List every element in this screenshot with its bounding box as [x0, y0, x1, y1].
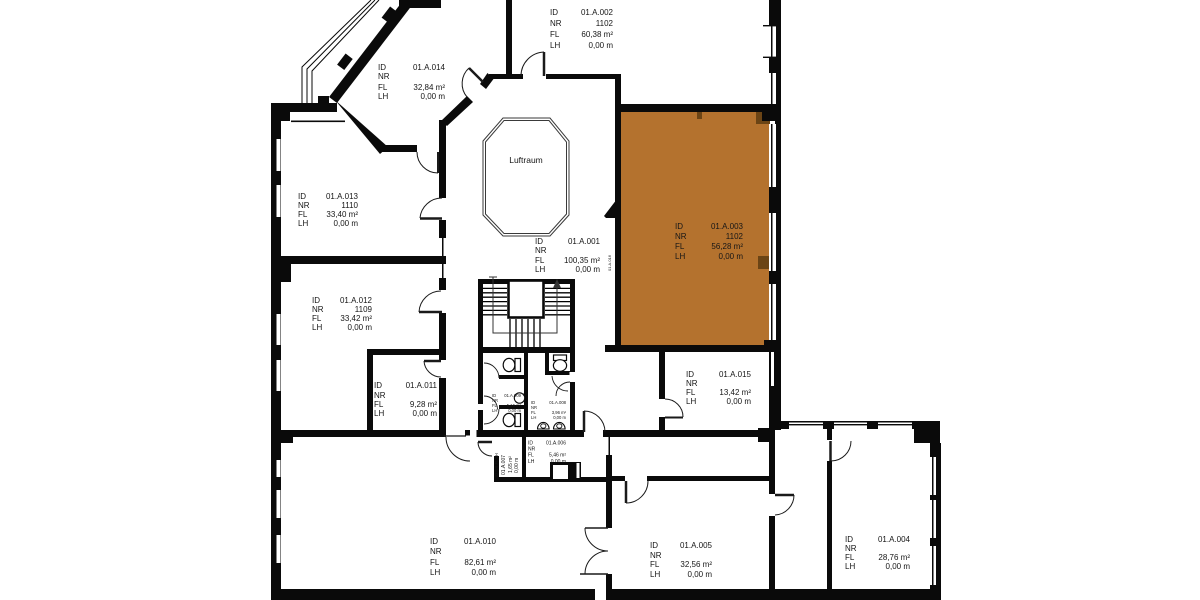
svg-text:LH: LH — [535, 265, 545, 274]
svg-text:0,00 m: 0,00 m — [413, 409, 438, 418]
svg-text:ID: ID — [430, 537, 438, 546]
svg-text:NR: NR — [430, 547, 442, 556]
svg-text:LH: LH — [312, 323, 322, 332]
svg-text:0,00 m: 0,00 m — [719, 252, 744, 261]
svg-text:LH: LH — [492, 408, 497, 413]
svg-text:28,76 m²: 28,76 m² — [878, 553, 910, 562]
svg-text:9,28 m²: 9,28 m² — [410, 400, 437, 409]
svg-text:NR: NR — [535, 246, 547, 255]
svg-text:NR: NR — [298, 201, 310, 210]
svg-text:FL: FL — [650, 560, 660, 569]
svg-text:01.A.010: 01.A.010 — [464, 537, 497, 546]
svg-text:1110: 1110 — [341, 201, 358, 210]
svg-text:32,84 m²: 32,84 m² — [413, 83, 445, 92]
svg-text:NR: NR — [650, 551, 662, 560]
svg-text:32,56 m²: 32,56 m² — [680, 560, 712, 569]
svg-text:NR: NR — [374, 391, 386, 400]
svg-text:NR: NR — [675, 232, 687, 241]
svg-text:LH: LH — [550, 41, 560, 50]
svg-text:01.A.008: 01.A.008 — [549, 400, 566, 405]
svg-text:ID: ID — [650, 541, 658, 550]
svg-text:ID: ID — [550, 8, 558, 17]
svg-text:NR: NR — [686, 379, 698, 388]
svg-text:FL: FL — [686, 388, 696, 397]
svg-text:FL: FL — [845, 553, 855, 562]
svg-text:33,40 m²: 33,40 m² — [326, 210, 358, 219]
svg-text:LH: LH — [675, 252, 685, 261]
svg-text:01.A.012: 01.A.012 — [340, 296, 373, 305]
svg-text:ID: ID — [535, 237, 543, 246]
svg-text:LH: LH — [378, 92, 388, 101]
svg-text:1102: 1102 — [726, 232, 744, 241]
svg-text:0,00 m: 0,00 m — [334, 219, 359, 228]
svg-text:ID: ID — [845, 535, 853, 544]
svg-text:ID: ID — [686, 370, 694, 379]
svg-text:LH: LH — [686, 397, 696, 406]
svg-text:0,00 m: 0,00 m — [553, 415, 566, 420]
svg-text:5,46 m²: 5,46 m² — [549, 453, 566, 459]
svg-text:1102: 1102 — [596, 19, 614, 28]
svg-text:FL: FL — [312, 314, 322, 323]
svg-text:ID: ID — [378, 63, 386, 72]
svg-text:FL: FL — [550, 30, 560, 39]
svg-text:FL: FL — [535, 256, 545, 265]
svg-text:FL: FL — [675, 242, 685, 251]
svg-text:01.A.014: 01.A.014 — [413, 63, 446, 72]
svg-text:01.A.004: 01.A.004 — [878, 535, 911, 544]
svg-text:13,42 m²: 13,42 m² — [719, 388, 751, 397]
svg-text:FL: FL — [528, 453, 534, 459]
svg-text:1109: 1109 — [355, 305, 373, 314]
svg-text:01.A.016: 01.A.016 — [607, 254, 612, 271]
svg-text:01.A.002: 01.A.002 — [581, 8, 614, 17]
svg-text:0,00 m: 0,00 m — [348, 323, 373, 332]
svg-text:LH: LH — [430, 568, 440, 577]
svg-text:LH: LH — [298, 219, 308, 228]
svg-text:0,00 m: 0,00 m — [589, 41, 614, 50]
svg-text:ID: ID — [298, 192, 306, 201]
svg-text:0,00 m: 0,00 m — [514, 458, 520, 473]
svg-text:01.A.009: 01.A.009 — [504, 393, 521, 398]
svg-text:ID: ID — [312, 296, 320, 305]
svg-text:ID: ID — [374, 381, 382, 390]
svg-text:FL: FL — [298, 210, 308, 219]
svg-text:FL: FL — [378, 83, 388, 92]
svg-text:100,35 m²: 100,35 m² — [564, 256, 600, 265]
svg-text:LH: LH — [650, 570, 660, 579]
svg-text:01.A.011: 01.A.011 — [406, 381, 438, 390]
svg-text:LH: LH — [845, 562, 855, 571]
svg-text:FL: FL — [430, 558, 440, 567]
svg-text:0,00 m: 0,00 m — [886, 562, 911, 571]
svg-text:NR: NR — [550, 19, 562, 28]
svg-text:ID: ID — [675, 222, 683, 231]
svg-text:0,00 m: 0,00 m — [421, 92, 446, 101]
svg-text:LH: LH — [374, 409, 384, 418]
svg-text:ID NR FL LH: ID NR FL LH — [494, 453, 499, 477]
svg-text:60,38 m²: 60,38 m² — [581, 30, 613, 39]
svg-text:NR: NR — [312, 305, 324, 314]
svg-text:0,00 m: 0,00 m — [551, 459, 566, 465]
svg-text:0,00 m: 0,00 m — [508, 408, 521, 413]
svg-text:56,28 m²: 56,28 m² — [711, 242, 743, 251]
svg-text:0,00 m: 0,00 m — [472, 568, 497, 577]
svg-text:01.A.006: 01.A.006 — [546, 441, 566, 447]
svg-text:Luftraum: Luftraum — [509, 155, 543, 165]
svg-text:FL: FL — [374, 400, 384, 409]
svg-text:NR: NR — [378, 72, 390, 81]
svg-text:NR: NR — [845, 544, 857, 553]
svg-text:0,00 m: 0,00 m — [688, 570, 713, 579]
svg-text:01.A.005: 01.A.005 — [680, 541, 713, 550]
svg-text:01.A.003: 01.A.003 — [711, 222, 744, 231]
svg-text:01.A.015: 01.A.015 — [719, 370, 752, 379]
svg-text:01.A.007: 01.A.007 — [501, 455, 507, 475]
svg-text:LH: LH — [528, 459, 535, 465]
svg-text:01.A.013: 01.A.013 — [326, 192, 359, 201]
svg-text:0,00 m: 0,00 m — [576, 265, 601, 274]
svg-text:33,42 m²: 33,42 m² — [340, 314, 372, 323]
svg-text:LH: LH — [531, 415, 536, 420]
svg-text:0,00 m: 0,00 m — [727, 397, 752, 406]
svg-text:01.A.001: 01.A.001 — [568, 237, 601, 246]
svg-text:82,61 m²: 82,61 m² — [464, 558, 496, 567]
